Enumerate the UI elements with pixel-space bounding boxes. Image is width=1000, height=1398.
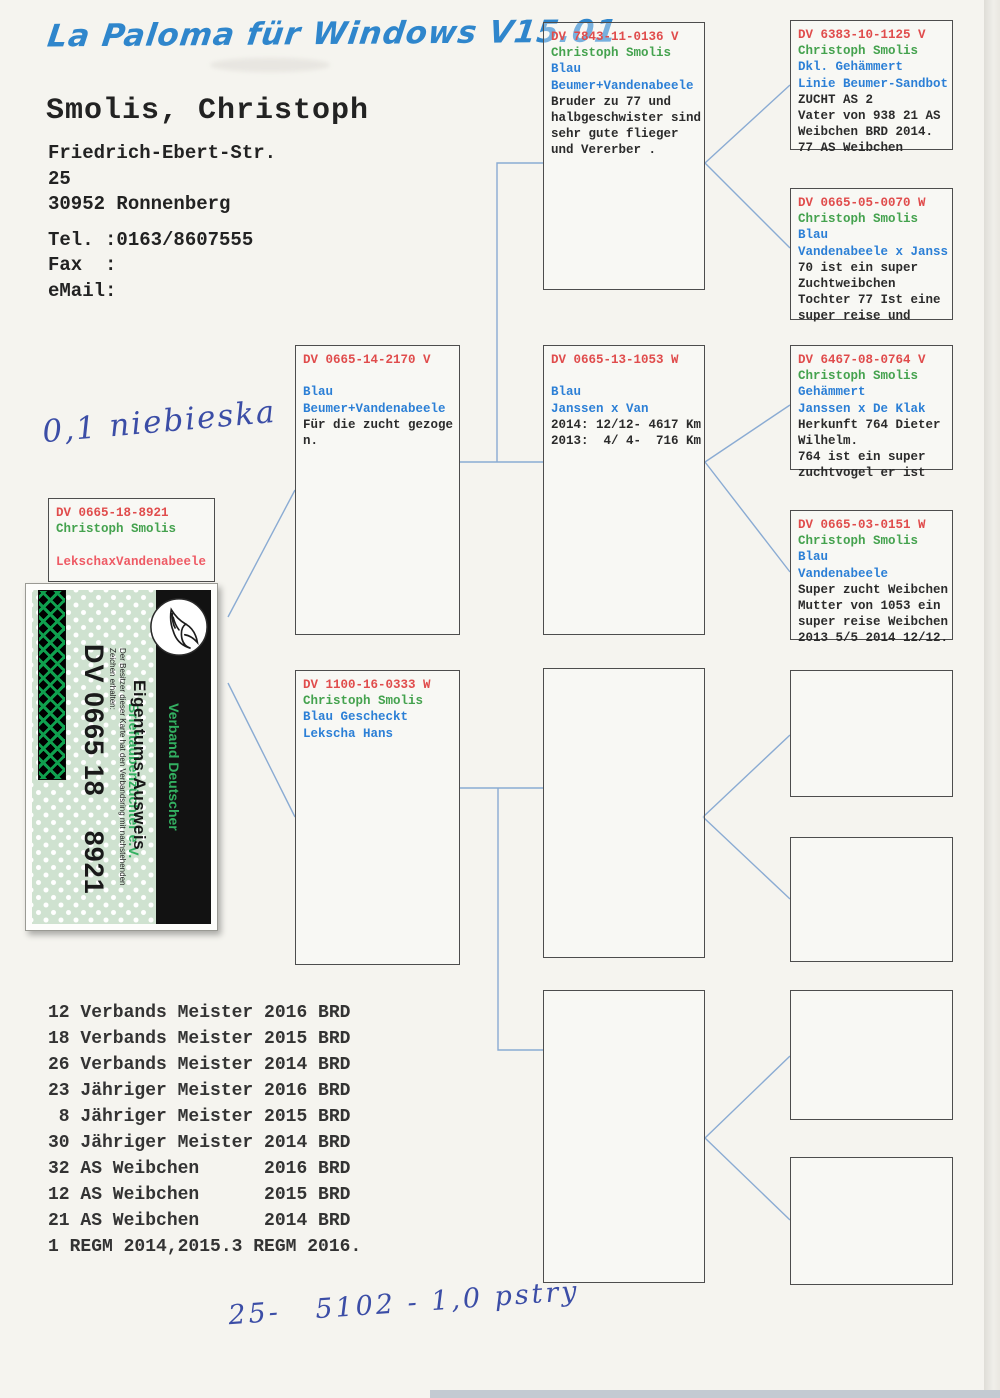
note-line: sehr gute flieger: [551, 126, 704, 142]
note-line: Bruder zu 77 und: [551, 94, 704, 110]
breeder-name: Christoph Smolis: [303, 693, 459, 709]
note-line: zuchtvogel er ist: [798, 465, 952, 481]
pedigree-box-sdd: DV 0665-03-0151 WChristoph SmolisBlauVan…: [790, 510, 953, 640]
breeder-name: Christoph Smolis: [798, 43, 952, 59]
ownership-card: Verband Deutscher Brieftaubenzüchter e.V…: [25, 583, 218, 931]
pedigree-box-dam: DV 1100-16-0333 WChristoph SmolisBlau Ge…: [295, 670, 460, 965]
pedigree-box-sss: DV 6383-10-1125 VChristoph SmolisDkl. Ge…: [790, 20, 953, 150]
note-line: 2014: 12/12- 4617 Km: [551, 417, 704, 433]
owner-contact: Tel. :0163/8607555Fax :eMail:: [48, 228, 253, 304]
owner-address-line: Friedrich-Ebert-Str.: [48, 141, 276, 167]
pedigree-box-dds: [790, 990, 953, 1120]
note-line: Vater von 938 21 AS: [798, 108, 952, 124]
color-strain-line: Blau: [798, 549, 952, 565]
ring-number: DV 0665-05-0070 W: [798, 195, 952, 211]
ring-number: DV 0665-13-1053 W: [551, 352, 704, 368]
note-line: ZUCHT AS 2: [798, 92, 952, 108]
breeder-name: Christoph Smolis: [798, 533, 952, 549]
card-ornament-band: [38, 590, 66, 780]
scan-edge-bottom: [430, 1390, 1000, 1398]
owner-address-line: 30952 Ronnenberg: [48, 192, 276, 218]
ownership-card-face: Verband Deutscher Brieftaubenzüchter e.V…: [25, 583, 218, 931]
note-line: 2013: 4/ 4- 716 Km: [551, 433, 704, 449]
note-line: Mutter von 1053 ein: [798, 598, 952, 614]
ring-number: DV 1100-16-0333 W: [303, 677, 459, 693]
owner-address-line: 25: [48, 167, 276, 193]
note-line: Zuchtweibchen: [798, 276, 952, 292]
dove-logo-icon: [148, 596, 210, 658]
pedigree-box-dsd: [790, 837, 953, 962]
pedigree-box-ddd: [790, 1157, 953, 1285]
achievement-line: 26 Verbands Meister 2014 BRD: [48, 1052, 361, 1078]
subject-spacer: [56, 537, 214, 553]
note-line: 764 ist ein super: [798, 449, 952, 465]
breeder-name: [303, 368, 459, 384]
note-line: Weibchen BRD 2014.: [798, 124, 952, 140]
achievement-line: 1 REGM 2014,2015.3 REGM 2016.: [48, 1234, 361, 1260]
color-strain-line: Blau: [551, 61, 704, 77]
achievements-list: 12 Verbands Meister 2016 BRD18 Verbands …: [48, 1000, 361, 1260]
owner-contact-line: eMail:: [48, 279, 253, 304]
achievement-line: 30 Jähriger Meister 2014 BRD: [48, 1130, 361, 1156]
note-line: 77 AS Weibchen: [798, 140, 952, 156]
note-line: Herkunft 764 Dieter: [798, 417, 952, 433]
card-ring-number: DV 0665 18 8921: [78, 644, 109, 895]
note-line: Tochter 77 Ist eine: [798, 292, 952, 308]
note-line: 2013 5/5 2014 12/12.: [798, 630, 952, 646]
achievement-line: 21 AS Weibchen 2014 BRD: [48, 1208, 361, 1234]
owner-contact-line: Fax :: [48, 253, 253, 278]
ring-number: DV 6467-08-0764 V: [798, 352, 952, 368]
achievement-line: 23 Jähriger Meister 2016 BRD: [48, 1078, 361, 1104]
ring-number: DV 7843-11-0136 V: [551, 29, 704, 45]
pedigree-box-ds: [543, 668, 705, 958]
card-title: Eigentums-Ausweis: [129, 680, 149, 850]
note-line: Wilhelm.: [798, 433, 952, 449]
pedigree-box-subject: DV 0665-18-8921 Christoph Smolis Lekscha…: [48, 498, 215, 582]
subject-ring-number: DV 0665-18-8921: [56, 505, 214, 521]
note-line: super reise Weibchen: [798, 614, 952, 630]
achievement-line: 12 Verbands Meister 2016 BRD: [48, 1000, 361, 1026]
ring-number: DV 0665-14-2170 V: [303, 352, 459, 368]
pedigree-box-sire: DV 0665-14-2170 V BlauBeumer+Vandenabeel…: [295, 345, 460, 635]
color-strain-line: Blau: [303, 384, 459, 400]
color-strain-line: Beumer+Vandenabeele: [303, 401, 459, 417]
card-association-line1: Verband Deutscher: [166, 703, 182, 831]
achievement-line: 32 AS Weibchen 2016 BRD: [48, 1156, 361, 1182]
breeder-name: Christoph Smolis: [551, 45, 704, 61]
breeder-name: Christoph Smolis: [798, 368, 952, 384]
pedigree-document-page: La Paloma für Windows V15.01 Smolis, Chr…: [0, 0, 1000, 1398]
note-line: halbgeschwister sind: [551, 110, 704, 126]
color-strain-line: Vandenabeele x Janss: [798, 244, 952, 260]
color-strain-line: Gehämmert: [798, 384, 952, 400]
color-strain-line: Blau: [551, 384, 704, 400]
note-line: Für die zucht gezoge: [303, 417, 459, 433]
pedigree-box-ss: DV 7843-11-0136 VChristoph SmolisBlauBeu…: [543, 22, 705, 290]
note-line: und Vererber .: [551, 142, 704, 158]
owner-name: Smolis, Christoph: [46, 94, 369, 128]
color-strain-line: Janssen x Van: [551, 401, 704, 417]
color-strain-line: Beumer+Vandenabeele: [551, 78, 704, 94]
pedigree-box-dd: [543, 990, 705, 1283]
color-strain-line: Janssen x De Klak: [798, 401, 952, 417]
achievement-line: 18 Verbands Meister 2015 BRD: [48, 1026, 361, 1052]
pedigree-box-sd: DV 0665-13-1053 W BlauJanssen x Van2014:…: [543, 345, 705, 635]
pedigree-box-dss: [790, 670, 953, 797]
color-strain-line: Dkl. Gehämmert: [798, 59, 952, 75]
breeder-name: [551, 368, 704, 384]
note-line: n.: [303, 433, 459, 449]
achievement-line: 8 Jähriger Meister 2015 BRD: [48, 1104, 361, 1130]
note-line: Super zucht Weibchen: [798, 582, 952, 598]
scan-edge-right: [984, 0, 1000, 1398]
ring-number: DV 6383-10-1125 V: [798, 27, 952, 43]
color-strain-line: Blau: [798, 227, 952, 243]
color-strain-line: Lekscha Hans: [303, 726, 459, 742]
ring-number: DV 0665-03-0151 W: [798, 517, 952, 533]
breeder-name: Christoph Smolis: [798, 211, 952, 227]
note-line: 70 ist ein super: [798, 260, 952, 276]
note-line: super reise und: [798, 308, 952, 324]
pedigree-box-ssd: DV 0665-05-0070 WChristoph SmolisBlauVan…: [790, 188, 953, 320]
owner-contact-line: Tel. :0163/8607555: [48, 228, 253, 253]
color-strain-line: Linie Beumer-Sandbot: [798, 76, 952, 92]
color-strain-line: Vandenabeele: [798, 566, 952, 582]
color-strain-line: Blau Gescheckt: [303, 709, 459, 725]
subject-strain: LekschaxVandenabeele: [56, 554, 214, 570]
scan-smudge: [210, 58, 330, 72]
achievement-line: 12 AS Weibchen 2015 BRD: [48, 1182, 361, 1208]
software-title: La Paloma für Windows V15.01: [45, 14, 619, 55]
pedigree-box-sds: DV 6467-08-0764 VChristoph SmolisGehämme…: [790, 345, 953, 470]
card-subtext: Der Besitzer dieser Karte hat den Verban…: [108, 648, 127, 898]
owner-address: Friedrich-Ebert-Str.2530952 Ronnenberg: [48, 141, 276, 218]
subject-breeder: Christoph Smolis: [56, 521, 214, 537]
